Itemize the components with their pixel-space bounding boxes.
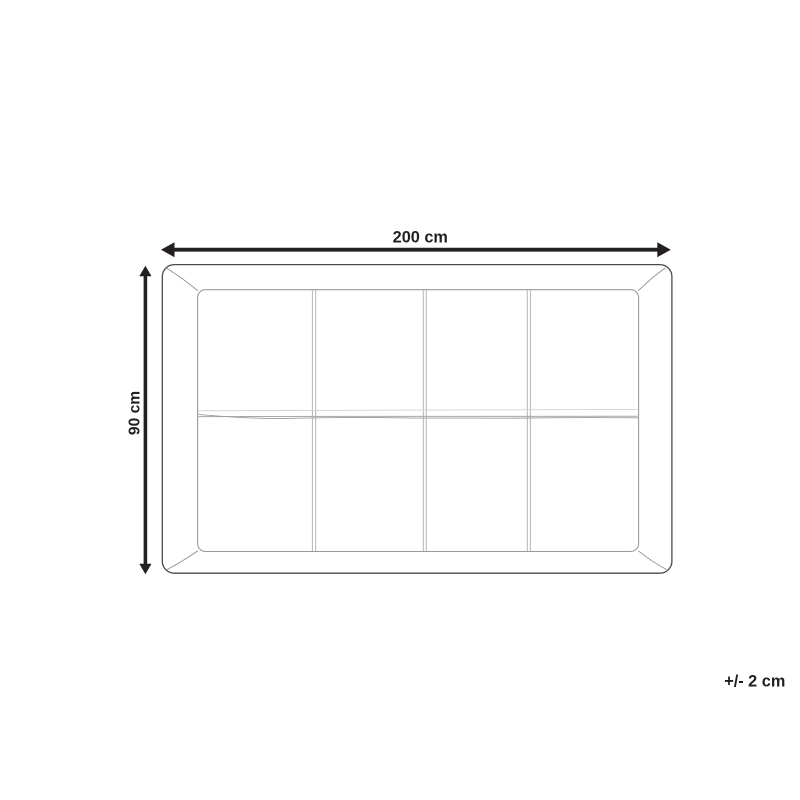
svg-text:+/- 2 cm: +/- 2 cm <box>724 672 785 690</box>
svg-text:90 cm: 90 cm <box>127 391 144 435</box>
svg-text:200 cm: 200 cm <box>393 228 448 246</box>
